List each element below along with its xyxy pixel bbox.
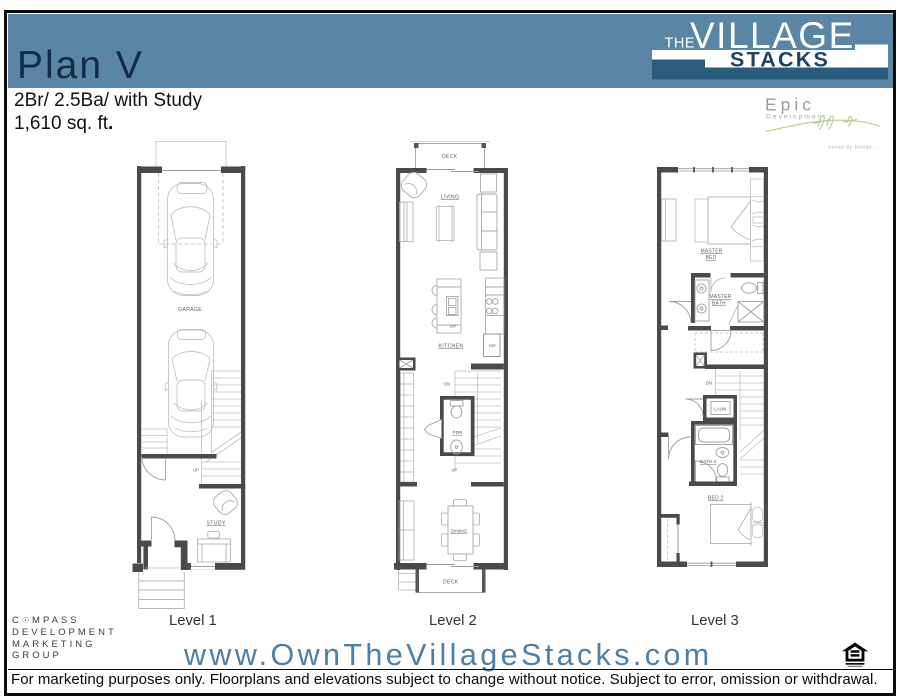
svg-text:DECK: DECK — [443, 580, 459, 586]
svg-text:STACKS: STACKS — [730, 47, 830, 71]
svg-text:UP: UP — [452, 468, 458, 473]
svg-text:DINING: DINING — [451, 529, 468, 535]
svg-text:Epic: Epic — [765, 95, 815, 115]
svg-text:UP: UP — [193, 468, 199, 473]
svg-text:Suited By Design...: Suited By Design... — [828, 145, 878, 150]
svg-text:DW: DW — [450, 324, 457, 328]
svg-text:REF: REF — [489, 344, 497, 348]
svg-text:THE: THE — [665, 35, 696, 51]
svg-text:DECK: DECK — [442, 154, 458, 160]
svg-text:BATH: BATH — [712, 301, 726, 307]
svg-text:MASTER: MASTER — [710, 294, 732, 300]
svg-text:LAUN.: LAUN. — [714, 407, 728, 412]
svg-text:BED: BED — [706, 255, 717, 261]
svg-text:LIVING: LIVING — [441, 195, 460, 201]
svg-text:PDR: PDR — [453, 430, 463, 435]
svg-text:BED 2: BED 2 — [708, 496, 723, 502]
svg-text:DN: DN — [444, 382, 450, 387]
svg-text:MASTER: MASTER — [701, 249, 723, 255]
svg-text:GARAGE: GARAGE — [178, 307, 202, 313]
svg-text:Development: Development — [766, 114, 827, 121]
svg-text:STUDY: STUDY — [207, 521, 226, 527]
svg-text:DN: DN — [706, 381, 712, 386]
svg-text:KITCHEN: KITCHEN — [439, 344, 464, 350]
